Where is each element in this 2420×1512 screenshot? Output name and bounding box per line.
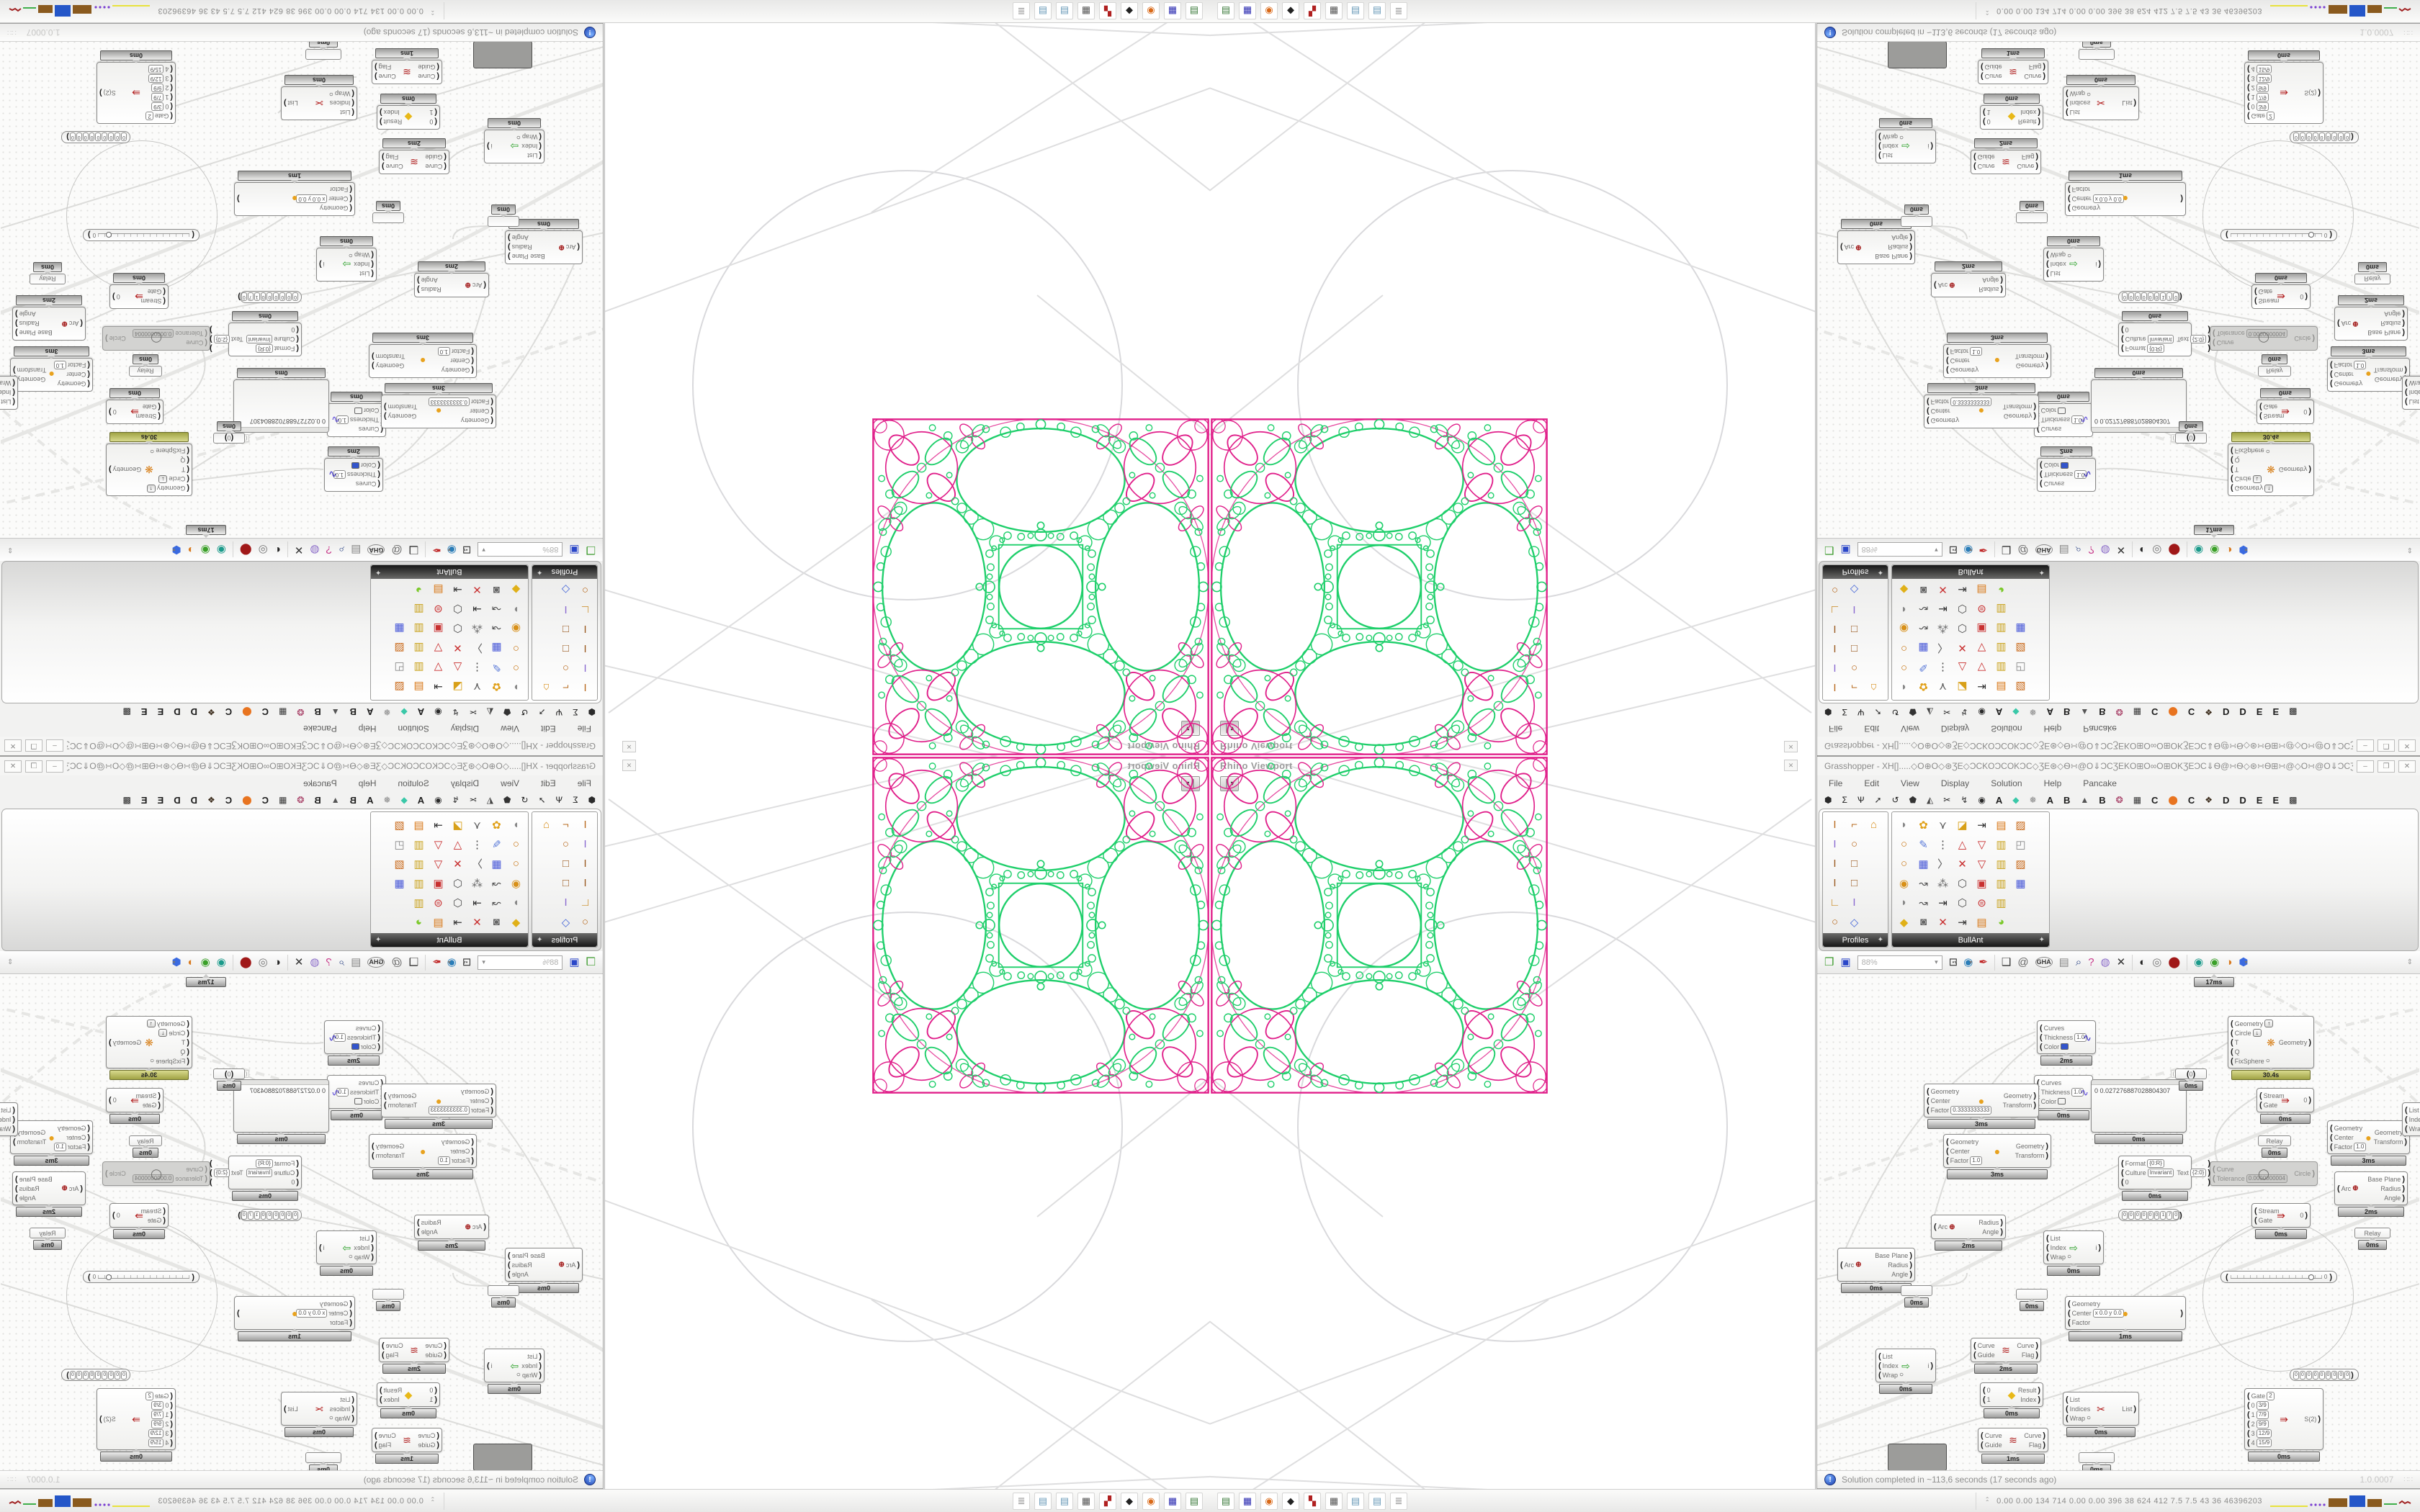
floppy-64-app-icon[interactable]: ▦	[1164, 1493, 1181, 1510]
input-port[interactable]: (Color	[333, 461, 380, 470]
tab-D[interactable]: D	[2223, 795, 2229, 806]
balloon-icon[interactable]: ◍	[2101, 957, 2110, 968]
floppy-64-app-icon[interactable]: ▦	[1239, 3, 1256, 20]
relay[interactable]: 0ms	[2016, 1289, 2048, 1311]
firefox-app-icon[interactable]: ◉	[1260, 1493, 1278, 1510]
stream-filter[interactable]: (Stream(Gate0)⇛0ms	[2257, 1088, 2314, 1124]
color-swatch[interactable]	[354, 1098, 362, 1104]
output-port[interactable]: List)	[284, 99, 298, 108]
shield-icon[interactable]: ❂	[297, 796, 304, 804]
output-port[interactable]: Base Plane)	[508, 252, 545, 261]
menu-item-display[interactable]: Display	[451, 778, 479, 788]
annotate-icon[interactable]: @	[2017, 957, 2028, 968]
tape-digit[interactable]: 0	[121, 133, 127, 142]
window-titlebar[interactable]: Grasshopper - XH[].....◇O⊕O◇⊛ƷE◇ƆCKOƆCOK…	[1817, 757, 2420, 775]
input-port[interactable]: (Thickness1.0	[333, 470, 380, 480]
zoom-combobox[interactable]: 88%▾	[478, 955, 563, 970]
input-port[interactable]: (List	[2066, 1395, 2091, 1404]
palette-component-icon[interactable]: ▥	[1991, 600, 2011, 619]
color-swatch[interactable]	[354, 408, 362, 414]
input-port[interactable]: (Stream	[2254, 1206, 2280, 1215]
hide-wires-icon[interactable]: ✕	[295, 544, 304, 555]
flip-curve[interactable]: (Curve(GuideCurve)Flag)≋1ms	[1978, 1428, 2048, 1464]
palette-component-icon[interactable]: ▽	[1972, 658, 1991, 678]
palette-component-icon[interactable]: ◇	[556, 912, 575, 932]
input-port[interactable]: (Stream	[135, 1091, 161, 1100]
palette-component-icon[interactable]: ∟	[575, 893, 595, 912]
value-chip[interactable]: x 0.0 y 0.0	[2093, 195, 2124, 204]
half-ball-icon[interactable]: ◑	[188, 544, 194, 555]
digit-tape[interactable]: 000000000)	[61, 131, 130, 143]
output-port[interactable]: Angle)	[1875, 1269, 1912, 1279]
calculator-app-icon[interactable]: ▦	[1325, 1493, 1343, 1510]
output-port[interactable]: )	[2177, 1158, 2210, 1168]
input-port[interactable]: (Wrap○	[2046, 251, 2071, 260]
palette-component-icon[interactable]: □	[556, 873, 575, 893]
input-port[interactable]: (Center	[438, 1146, 474, 1156]
input-port[interactable]: (Geometry	[429, 416, 493, 426]
input-port[interactable]: (415/9	[2247, 1438, 2275, 1447]
output-port[interactable]: i)	[319, 1243, 325, 1252]
input-port[interactable]: (FixSphere○	[2231, 1056, 2273, 1066]
output-port[interactable]: i)	[1927, 1361, 1933, 1370]
tape-digit[interactable]: 0	[2293, 1371, 2299, 1380]
palette-component-icon[interactable]: ⇥	[1933, 600, 1953, 619]
input-port[interactable]: (0	[246, 325, 299, 335]
palette-component-icon[interactable]: ▤	[1991, 678, 2011, 697]
deconstruct-arc[interactable]: (Arc⊕Base Plane)Radius)Angle)2ms	[2334, 1171, 2408, 1217]
resize-grip[interactable]: ∷∷	[7, 29, 17, 37]
mountain-icon[interactable]: ▲	[2080, 708, 2089, 716]
panel-header[interactable]	[234, 1080, 328, 1085]
palette-component-icon[interactable]: ✿	[1914, 678, 1933, 697]
scale[interactable]: (Geometry(Center(Factor1.0Geometry)Trans…	[10, 1120, 93, 1166]
palette-component-icon[interactable]: ∟	[1825, 600, 1845, 619]
minimize-button[interactable]: –	[2357, 760, 2374, 773]
terminal-app-icon[interactable]: ▤	[1217, 3, 1234, 20]
input-port[interactable]: (Arc⊕	[465, 281, 486, 290]
firefox-app-icon[interactable]: ◉	[1142, 3, 1160, 20]
palette-component-icon[interactable]: I	[575, 834, 595, 854]
tape-digit[interactable]: 1	[254, 293, 260, 302]
output-port[interactable]: Result)	[2018, 117, 2040, 127]
number-param[interactable]: ( 0 )0ms	[2175, 421, 2207, 444]
palette-component-icon[interactable]: ✎	[1914, 658, 1933, 678]
input-port[interactable]: (Centerx 0.0 y 0.0	[296, 1308, 352, 1318]
palette-component-icon[interactable]: ↝	[487, 619, 506, 639]
tab-B[interactable]: B	[350, 707, 357, 718]
palette-component-icon[interactable]: ▨	[390, 639, 409, 658]
scale[interactable]: (Geometry(Center(Factor1.0Geometry)Trans…	[2327, 346, 2410, 392]
toggle-circle[interactable]: ○	[349, 1253, 353, 1261]
input-port[interactable]: (Format{0:R}	[246, 1158, 299, 1168]
menu-item-pancake[interactable]: Pancake	[303, 724, 337, 734]
vector-tab[interactable]: ➚	[1874, 708, 1881, 716]
palette-component-icon[interactable]: I	[1825, 854, 1845, 873]
palette-label-bar[interactable]: BullAnt✦	[1892, 933, 2049, 947]
value-chip[interactable]: 9/9	[2257, 84, 2269, 93]
palette-component-icon[interactable]: ▥	[409, 600, 429, 619]
menu-item-view[interactable]: View	[1901, 778, 1919, 788]
input-port[interactable]: (Factor1.0	[2330, 1142, 2366, 1151]
palette-component-icon[interactable]: ⬡	[448, 619, 467, 639]
input-port[interactable]: (Index	[1878, 142, 1904, 151]
palette-component-icon[interactable]: △	[1953, 834, 1972, 854]
input-port[interactable]: (17/9	[2247, 1410, 2275, 1419]
curve-tab[interactable]: ↺	[1892, 796, 1899, 804]
input-port[interactable]: (Thickness1.0	[2037, 1087, 2084, 1097]
expression-icon[interactable]: ↓	[2253, 475, 2262, 483]
digit-tape[interactable]: 000000000)	[2290, 131, 2359, 143]
terminal-app-icon[interactable]: ▤	[1186, 3, 1203, 20]
toggle-circle[interactable]: ○	[1899, 133, 1904, 141]
value-chip[interactable]: 12/9	[148, 75, 164, 84]
output-port[interactable]: Curve)	[2024, 1431, 2045, 1440]
input-port[interactable]: (Geometry	[296, 1299, 352, 1308]
number-param[interactable]: ( 0 )0ms	[2175, 1068, 2207, 1091]
value-chip[interactable]: 0.3333333333	[1950, 398, 1991, 407]
preview-eye-icon[interactable]: ◉▾	[448, 544, 457, 555]
save-file-icon[interactable]: ▣	[569, 544, 579, 555]
viewport-close-button[interactable]: ✕	[1784, 760, 1798, 771]
input-port[interactable]: (Centerx 0.0 y 0.0	[2068, 1308, 2124, 1318]
palette-component-icon[interactable]: ◙	[487, 580, 506, 600]
palette-component-icon[interactable]: ○	[1894, 834, 1914, 854]
value-chip[interactable]: 0.3333333333	[429, 1106, 470, 1115]
shield-icon[interactable]: ❂	[2116, 796, 2123, 804]
palette-component-icon[interactable]: ▦	[487, 854, 506, 873]
output-port[interactable]: Angle)	[417, 276, 442, 285]
selected-component-clipped[interactable]	[1888, 42, 1947, 68]
palette-component-icon[interactable]: ○	[575, 912, 595, 932]
tab-D[interactable]: D	[2223, 707, 2229, 718]
custom-preview[interactable]: (Curves(Thickness1.0(Color∿0ms	[327, 392, 386, 437]
menu-item-pancake[interactable]: Pancake	[2083, 778, 2117, 788]
output-hook[interactable]: )	[2193, 434, 2196, 443]
palette-component-icon[interactable]: ⬡	[448, 893, 467, 912]
toggle-circle[interactable]: ○	[516, 133, 521, 141]
palette-component-icon[interactable]: □	[556, 639, 575, 658]
cards-app-icon[interactable]: ▚	[1099, 1493, 1116, 1510]
palette-component-icon[interactable]: ○	[1845, 834, 1864, 854]
output-hook[interactable]: )	[238, 1211, 241, 1220]
input-port[interactable]: (Arc⊕	[61, 319, 83, 328]
clipped-component[interactable]: 17ms	[2190, 976, 2238, 987]
input-port[interactable]: (Curve	[425, 1341, 447, 1350]
puff-icon[interactable]: ❅	[383, 796, 390, 804]
input-port[interactable]: (Curves	[2040, 1023, 2087, 1032]
transform-tab[interactable]: ↯	[1960, 796, 1968, 804]
palette-component-icon[interactable]: ▦	[487, 639, 506, 658]
input-port[interactable]: (Center	[438, 356, 474, 366]
palette-component-icon[interactable]: ○	[1825, 912, 1845, 932]
output-port[interactable]: Geometry)	[2279, 1038, 2311, 1047]
palette-component-icon[interactable]: ⋮	[1933, 834, 1953, 854]
stream-filter[interactable]: (Stream(Gate0)⇛0ms	[109, 1203, 169, 1239]
tape-digit[interactable]: 0	[261, 1211, 266, 1220]
output-port[interactable]: i)	[2095, 1243, 2101, 1252]
tape-digit[interactable]: 0	[115, 1371, 120, 1380]
input-port[interactable]: (Format{0:R}	[246, 344, 299, 354]
output-port[interactable]: Transform)	[13, 366, 46, 375]
output-hook[interactable]: )	[238, 293, 241, 302]
gha-globe-icon[interactable]: GHA	[367, 544, 385, 555]
output-port[interactable]: Transform)	[384, 402, 417, 412]
input-port[interactable]: (List	[2405, 397, 2420, 407]
tab-A[interactable]: A	[367, 795, 373, 806]
tape-digit[interactable]: 0	[95, 133, 101, 142]
palette-component-icon[interactable]: ✕	[467, 580, 487, 600]
input-port[interactable]: (Stream	[135, 412, 161, 421]
tab-E[interactable]: E	[141, 795, 148, 806]
palette-expand-icon[interactable]: ✦	[1878, 568, 1883, 576]
intersect-tab[interactable]: ✂	[470, 796, 477, 804]
orange-dot-icon[interactable]: ⬤	[242, 708, 251, 716]
output-port[interactable]: Index)	[2018, 1395, 2040, 1404]
output-port[interactable]: S(2))	[2304, 1415, 2321, 1424]
input-port[interactable]: (Factor1.0	[54, 1142, 90, 1151]
curve-tab[interactable]: ↺	[521, 708, 528, 716]
output-port[interactable]: Radius)	[2367, 319, 2405, 328]
list-item[interactable]: (List(Index(Wrap○i)⇨0ms	[484, 1349, 544, 1394]
input-port[interactable]: (Thickness1.0	[336, 1087, 383, 1097]
tape-digit[interactable]: 0	[2154, 293, 2160, 302]
palette-component-icon[interactable]: ▤	[429, 580, 448, 600]
output-port[interactable]: Circle)	[105, 1169, 126, 1179]
clipped-component[interactable]: 17ms	[2190, 525, 2238, 536]
input-port[interactable]: (Curve	[133, 338, 207, 348]
palette-label-bar[interactable]: Profiles✦	[532, 565, 597, 579]
notepad-app-icon[interactable]: ▤	[1056, 1493, 1073, 1510]
palette-component-icon[interactable]: ✕	[1953, 854, 1972, 873]
palette-component-icon[interactable]: ◉	[506, 619, 526, 639]
palette-component-icon[interactable]: ◇	[556, 580, 575, 600]
input-port[interactable]: (0	[2121, 325, 2174, 335]
mystery-box-icon[interactable]: ?	[326, 544, 331, 555]
value-chip[interactable]: Invariant	[2148, 336, 2174, 344]
inkscape-app-icon[interactable]: ◆	[1121, 3, 1138, 20]
notepad-app-icon[interactable]: ▤	[1056, 3, 1073, 20]
output-port[interactable]: Radius)	[417, 285, 442, 294]
palette-component-icon[interactable]: ⌐	[556, 815, 575, 834]
output-port[interactable]: Geometry)	[372, 361, 405, 371]
output-port[interactable]: 0)	[112, 292, 120, 302]
vector-tab[interactable]: ➚	[538, 708, 545, 716]
gha-globe-icon[interactable]: GHA	[2035, 957, 2053, 968]
palette-component-icon[interactable]: ▤	[429, 912, 448, 932]
palette-component-icon[interactable]: ✕	[467, 912, 487, 932]
sets-tab[interactable]: Ѱ	[556, 708, 563, 716]
output-hook[interactable]: )	[2193, 1070, 2196, 1079]
notepad-app-icon[interactable]: ▤	[1347, 1493, 1364, 1510]
tape-digit[interactable]: 0	[2306, 1371, 2312, 1380]
output-port[interactable]: Radius)	[1978, 285, 2003, 294]
tab-A[interactable]: A	[418, 795, 424, 806]
output-hook[interactable]: )	[2179, 1211, 2182, 1220]
input-port[interactable]: (Wrap○	[516, 1370, 542, 1380]
notepad-app-icon[interactable]: ▤	[1034, 3, 1052, 20]
relay[interactable]: 0ms	[305, 1452, 341, 1470]
palette-component-icon[interactable]: ⇥	[429, 678, 448, 697]
panel[interactable]: 0 0.027276887028804307(1:0)0ms	[233, 368, 329, 433]
output-port[interactable]: )	[2179, 194, 2183, 204]
orange-dot-icon[interactable]: ⬤	[2168, 796, 2177, 804]
value-chip[interactable]: x 0.0 y 0.0	[2093, 1309, 2124, 1318]
input-port[interactable]: (Stream	[140, 297, 166, 306]
maths-tab[interactable]: Σ	[1842, 796, 1847, 804]
input-port[interactable]: (Circle↓	[147, 474, 189, 484]
value-chip[interactable]: 2	[145, 1392, 153, 1400]
palette-component-icon[interactable]: ⇥	[448, 580, 467, 600]
document-icon[interactable]: ▤	[2059, 957, 2069, 968]
list-item[interactable]: (List(Index(Wrap○i)⇨0ms	[484, 118, 544, 163]
input-port[interactable]: (Gate2	[145, 112, 173, 121]
palette-component-icon[interactable]: ◰	[2011, 834, 2030, 854]
tape-digit[interactable]: 0	[2326, 133, 2331, 142]
output-port[interactable]: Result)	[380, 117, 402, 127]
menu-item-view[interactable]: View	[501, 778, 519, 788]
list-item[interactable]: (List(Index(Wrap○i)⇨0ms	[316, 1230, 377, 1276]
palette-component-icon[interactable]: ▨	[2011, 815, 2030, 834]
palette-label-bar[interactable]: Profiles✦	[532, 933, 597, 947]
input-hook[interactable]: (	[2187, 1070, 2190, 1079]
input-port[interactable]: (Curve	[1981, 72, 2002, 81]
input-port[interactable]: (Index	[516, 142, 542, 151]
floppy-64-app-icon[interactable]: ▦	[1239, 1493, 1256, 1510]
color-swatch[interactable]	[2058, 408, 2066, 414]
tape-digit[interactable]: 0	[2141, 1211, 2147, 1220]
value-chip[interactable]: {2:0}	[2190, 1169, 2206, 1177]
stream-gate[interactable]: (Gate2(03/9(17/9(29/9(312/9(415/9S(2))⇛0…	[2244, 1388, 2323, 1462]
input-port[interactable]: (415/9	[145, 1438, 173, 1447]
tape-digit[interactable]: 0	[241, 1211, 247, 1220]
list-item[interactable]: (List(Index(Wrap○i)⇨0ms	[1875, 1349, 1936, 1394]
palette-component-icon[interactable]: ◉	[506, 873, 526, 893]
output-hook[interactable]: )	[66, 133, 69, 142]
output-port[interactable]: Transform)	[2015, 352, 2048, 361]
palette-component-icon[interactable]: ⇥	[1972, 678, 1991, 697]
flip-curve[interactable]: (Curve(GuideCurve)Flag)≋2ms	[1971, 1338, 2041, 1374]
pick-and-choose[interactable]: (0(1Result)Index)◆0ms	[1980, 94, 2043, 130]
custom-preview[interactable]: (Curves(Thickness1.0(Color∿0ms	[2034, 392, 2093, 437]
relay[interactable]: 0ms	[1901, 204, 1932, 227]
palette-component-icon[interactable]: ◗	[506, 678, 526, 697]
palette-component-icon[interactable]: ◕	[1991, 912, 2011, 932]
palette-component-icon[interactable]: ▽	[1972, 639, 1991, 658]
output-port[interactable]: Flag)	[375, 1440, 396, 1449]
palette-component-icon[interactable]: ⋎	[467, 815, 487, 834]
palette-component-icon[interactable]: ✿	[487, 678, 506, 697]
relay[interactable]: Relay0ms	[30, 1228, 66, 1250]
input-port[interactable]: (FixSphere○	[2231, 446, 2273, 456]
tab-E[interactable]: E	[141, 707, 148, 718]
input-port[interactable]: (Curve	[425, 162, 447, 171]
zoom-extents-icon[interactable]: ⊡▾	[1949, 957, 1958, 968]
viewport-frame-icon[interactable]: ❑	[409, 957, 418, 968]
save-file-icon[interactable]: ▣	[569, 957, 579, 968]
input-port[interactable]: (1	[1983, 108, 1991, 117]
inkscape-app-icon[interactable]: ◆	[1282, 1493, 1299, 1510]
input-port[interactable]: (Curves	[336, 1078, 383, 1087]
half-ball-icon[interactable]: ◑	[2226, 544, 2232, 555]
menu-item-solution[interactable]: Solution	[398, 724, 429, 734]
input-port[interactable]: (312/9	[2247, 1428, 2275, 1438]
digit-tape[interactable]: 000000170)	[2118, 291, 2180, 303]
tape-digit[interactable]: 0	[108, 133, 114, 142]
input-port[interactable]: (Geometry	[54, 379, 90, 389]
digit-tape[interactable]: 000000000)	[61, 1369, 130, 1381]
value-chip[interactable]: 15/9	[2257, 66, 2272, 74]
input-port[interactable]: (Arc⊕	[1840, 243, 1862, 252]
selected-component-clipped[interactable]	[473, 42, 532, 68]
input-hook[interactable]: (	[231, 1070, 234, 1079]
palette-component-icon[interactable]: △	[448, 658, 467, 678]
output-port[interactable]: Transform)	[2003, 402, 2036, 412]
tab-C[interactable]: C	[2188, 795, 2195, 806]
output-port[interactable]: Base Plane)	[15, 328, 53, 338]
input-port[interactable]: (Wrap○	[2046, 1252, 2071, 1261]
palette-component-icon[interactable]: ▦	[1914, 854, 1933, 873]
relay[interactable]: 0ms	[372, 201, 404, 223]
curve-tab[interactable]: ↺	[1892, 708, 1899, 716]
value-chip[interactable]: 1.0	[54, 361, 66, 370]
input-port[interactable]: (List	[516, 1351, 542, 1361]
input-port[interactable]: (Wrap○	[2405, 379, 2420, 388]
palette-component-icon[interactable]: ⬡	[448, 873, 467, 893]
panel-header[interactable]	[2092, 427, 2186, 432]
palette-component-icon[interactable]: ▦	[390, 619, 409, 639]
save-file-icon[interactable]: ▣	[1840, 957, 1850, 968]
expression-icon[interactable]: ↑	[147, 485, 156, 492]
mesh-tab[interactable]: ◭	[487, 708, 493, 716]
tab-B[interactable]: B	[350, 795, 357, 806]
tab-E[interactable]: E	[2272, 707, 2279, 718]
checker-tab[interactable]: ▩	[2289, 708, 2297, 716]
value-chip[interactable]: 7/9	[2257, 1410, 2269, 1419]
zoom-combobox[interactable]: 88%▾	[1857, 955, 1942, 970]
palette-component-icon[interactable]: ▦	[1914, 639, 1933, 658]
tape-digit[interactable]: 0	[2331, 1371, 2337, 1380]
palette-component-icon[interactable]: □	[1845, 873, 1864, 893]
palette-component-icon[interactable]: △	[448, 834, 467, 854]
surface-tab[interactable]: ⬟	[1909, 708, 1917, 716]
input-port[interactable]: (Color	[2040, 1042, 2087, 1051]
zoom-extents-icon[interactable]: ⊡▾	[463, 544, 472, 555]
input-port[interactable]: (Tolerance0.0000000004	[133, 1174, 207, 1183]
pin-teal-icon[interactable]: ◉	[2194, 544, 2203, 555]
toggle-circle[interactable]: ○	[329, 1414, 333, 1422]
input-port[interactable]: (Arc⊕	[1934, 1223, 1955, 1232]
output-port[interactable]: )	[2177, 344, 2210, 354]
palette-component-icon[interactable]: ▣	[1972, 619, 1991, 639]
pick-and-choose[interactable]: (0(1Result)Index)◆0ms	[377, 94, 440, 130]
palette-expand-icon[interactable]: ✦	[375, 568, 381, 576]
scale[interactable]: (Geometry(Center(Factor0.3333333333Geome…	[1924, 1084, 2039, 1129]
output-port[interactable]: )	[210, 344, 243, 354]
palette-expand-icon[interactable]: ✦	[1878, 936, 1883, 944]
input-port[interactable]: (Gate	[2254, 287, 2280, 297]
palette-component-icon[interactable]: ▨	[2011, 678, 2030, 697]
maximize-button[interactable]: ❐	[2378, 740, 2395, 752]
input-port[interactable]: (List	[329, 108, 354, 117]
flip-curve[interactable]: (Curve(GuideCurve)Flag)≋2ms	[1971, 138, 2041, 174]
menu-item-file[interactable]: File	[578, 778, 591, 788]
mesh-tab[interactable]: ◭	[1927, 796, 1933, 804]
output-port[interactable]: Index)	[380, 1395, 402, 1404]
palette-component-icon[interactable]: ◗	[506, 893, 526, 912]
palette-component-icon[interactable]: ○	[556, 834, 575, 854]
inkscape-app-icon[interactable]: ◆	[1282, 3, 1299, 20]
